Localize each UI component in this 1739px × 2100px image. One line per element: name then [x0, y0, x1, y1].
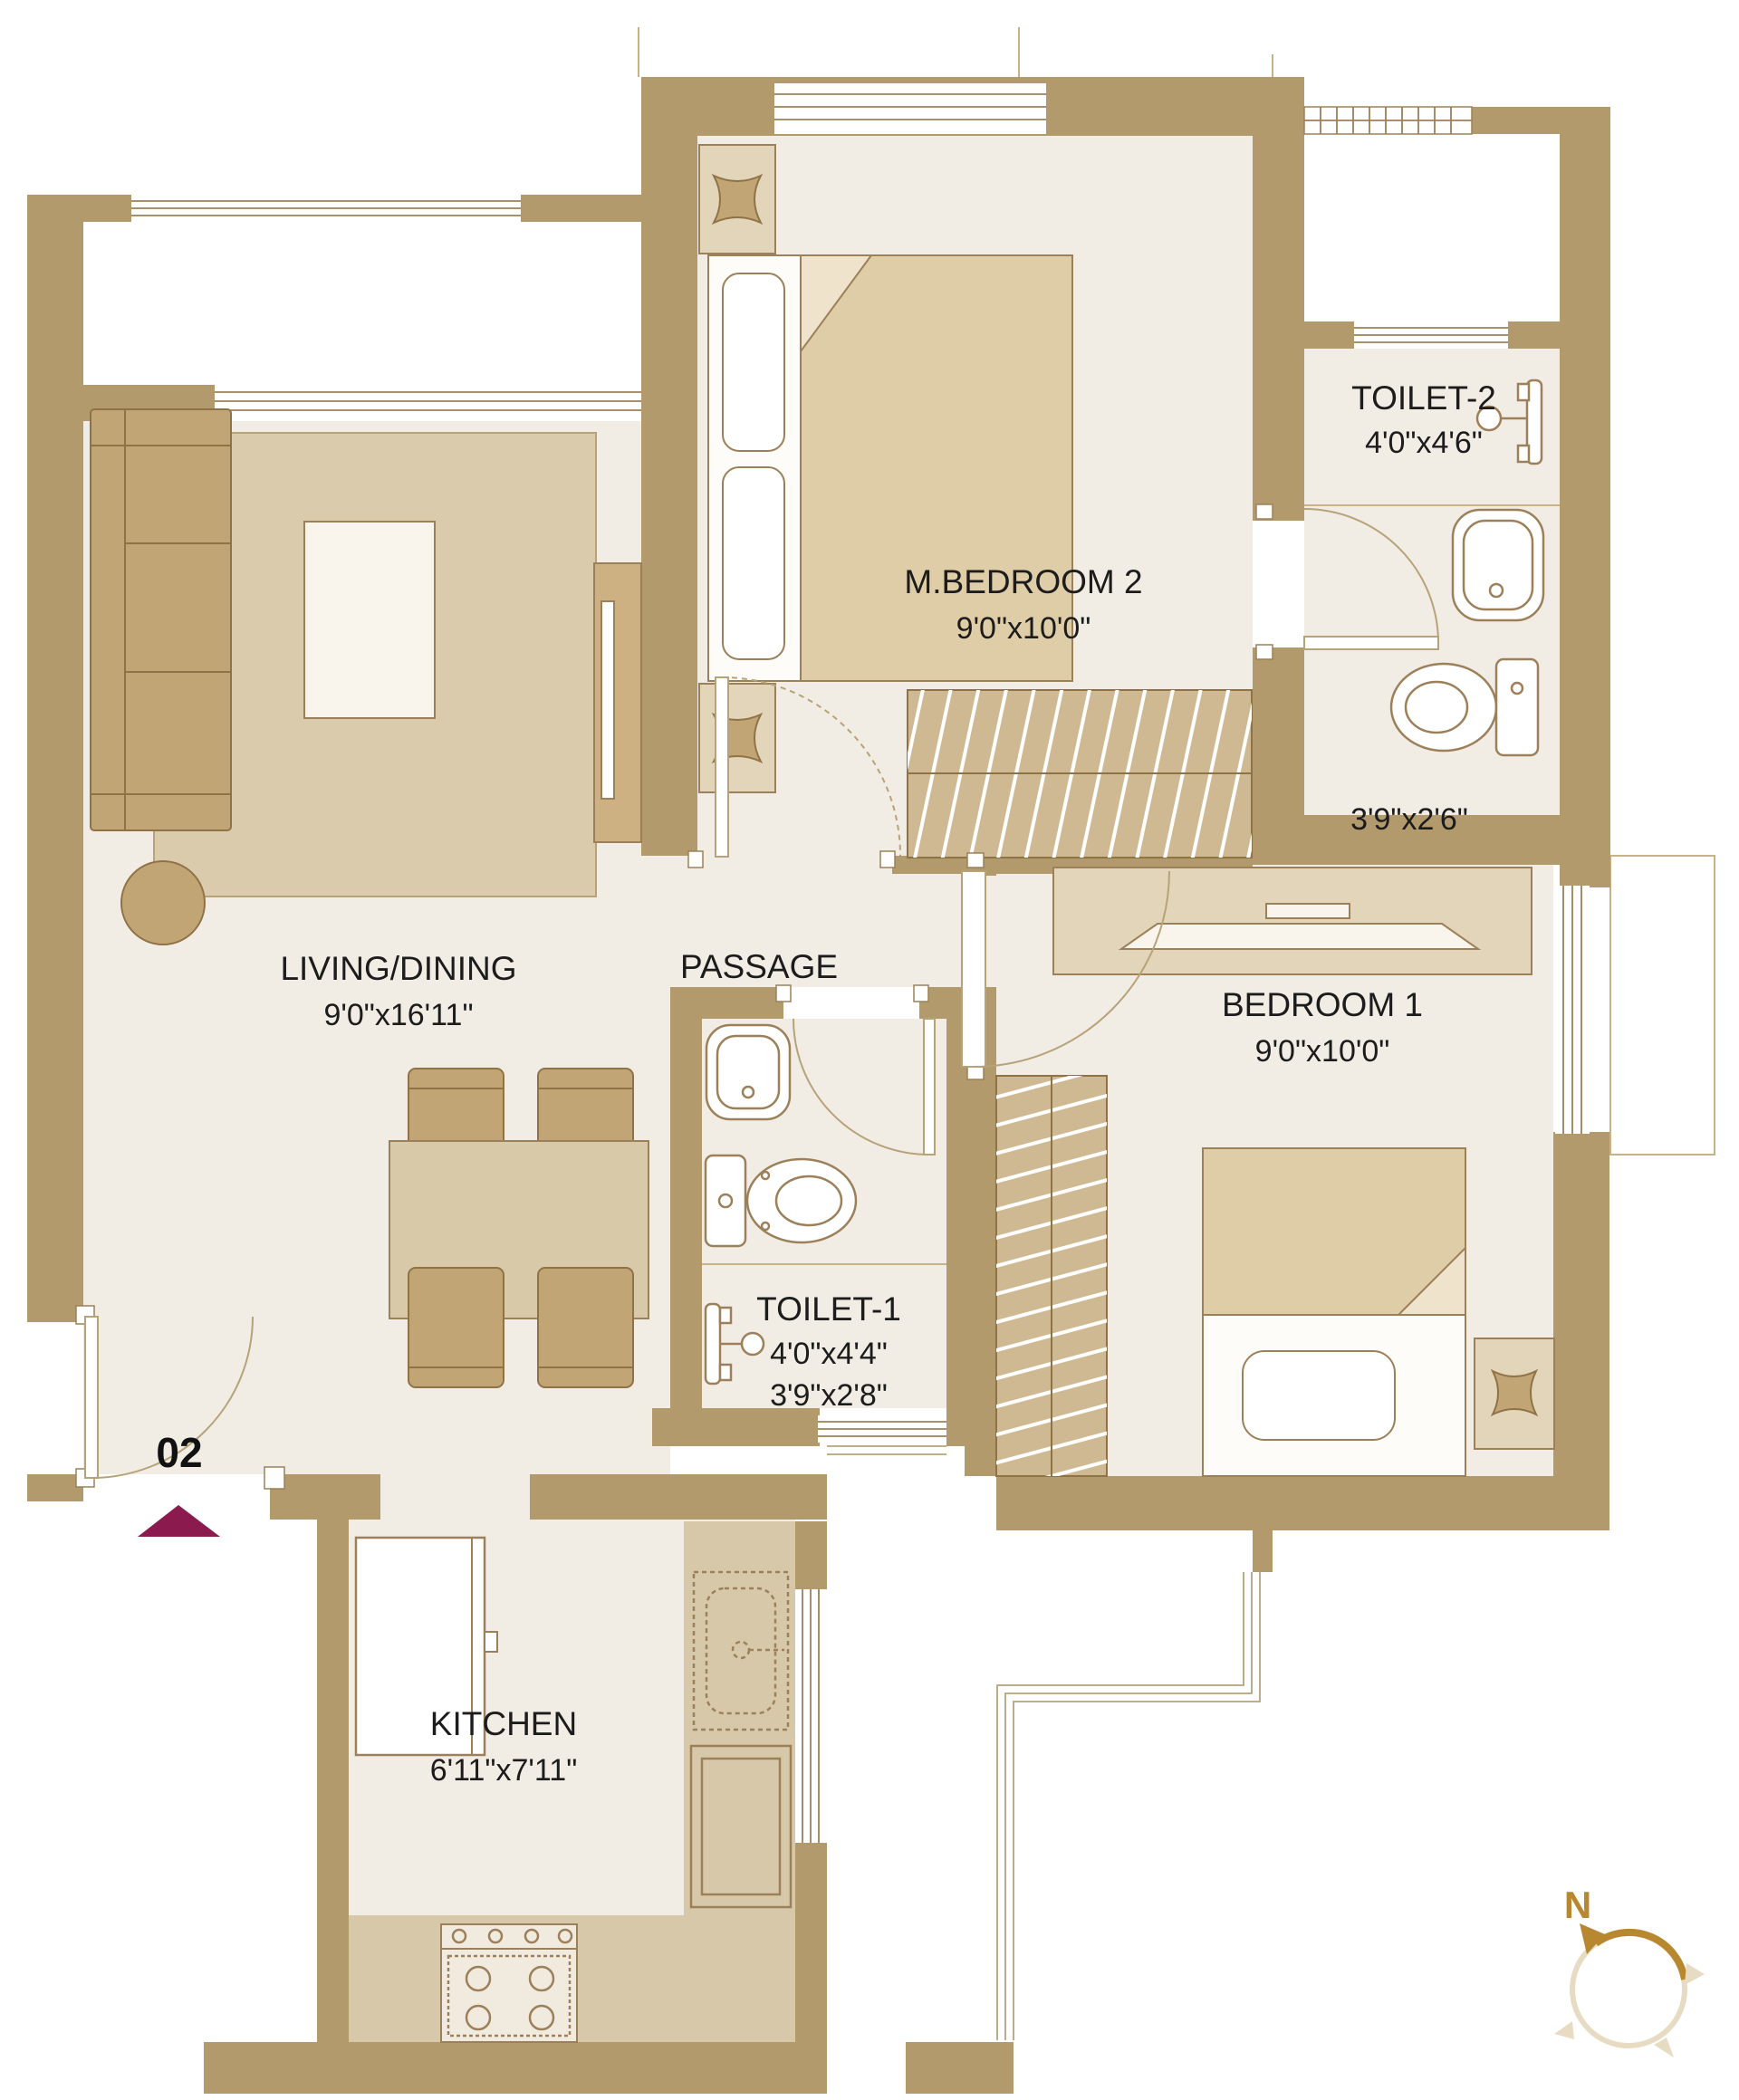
pillow — [1243, 1351, 1395, 1440]
deco-pillow — [1493, 1371, 1536, 1414]
wall-bedroom1-right — [1553, 1132, 1609, 1476]
mbedroom2-dims: 9'0"x10'0" — [956, 611, 1091, 646]
toilet1-dims: 4'0"x4'4" — [770, 1337, 888, 1371]
wall-duct-left — [1253, 77, 1304, 349]
wall-stub-below-bedroom1 — [1253, 1530, 1273, 1572]
side-chajja-outline — [1610, 856, 1715, 1155]
toilet2-sub-dims: 3'9"x2'6" — [1350, 802, 1468, 837]
living-dims: 9'0"x16'11" — [323, 998, 473, 1032]
wall-duct-bottom-right — [1508, 321, 1560, 349]
duct-louver-band — [1304, 107, 1472, 134]
bed — [1203, 1148, 1465, 1476]
toilet2-dims: 4'0"x4'6" — [1365, 426, 1483, 460]
bedroom1-right-window — [1555, 886, 1590, 1134]
mbedroom2-label: M.BEDROOM 2 — [904, 563, 1142, 600]
duct-floor — [1304, 134, 1560, 321]
wardrobe — [908, 690, 1252, 858]
balcony-top-window — [131, 195, 521, 222]
mbedroom2-top-window — [774, 83, 1046, 134]
passage-label: PASSAGE — [680, 948, 838, 985]
wall-kitchen-north-right — [530, 1474, 827, 1520]
entry-arrow-icon — [138, 1505, 220, 1537]
ledge-step-lines — [827, 1446, 1260, 2040]
coffee-table — [304, 522, 435, 718]
kitchen-label: KITCHEN — [430, 1705, 577, 1742]
wall-balcony-top-left — [27, 195, 131, 222]
compass-icon: N — [1554, 1884, 1705, 2057]
wall-toilet1-bottom — [652, 1408, 820, 1446]
stove-icon — [441, 1924, 577, 2042]
wall-toilet1-bottom-right — [946, 1408, 996, 1446]
wall-duct-bottom-left — [1304, 321, 1354, 349]
pillow — [723, 273, 784, 451]
kitchen-right-window — [795, 1589, 827, 1843]
living-label: LIVING/DINING — [280, 950, 516, 987]
wall-kitchen-right-lower — [795, 1843, 827, 2042]
bedroom1-dims: 9'0"x10'0" — [1255, 1034, 1390, 1069]
dining-chair — [408, 1268, 504, 1387]
bedroom1-label: BEDROOM 1 — [1222, 986, 1423, 1023]
balcony-floor — [83, 222, 641, 385]
sofa — [91, 409, 231, 830]
compass-north-label: N — [1564, 1884, 1591, 1926]
washbasin-icon — [1453, 510, 1543, 620]
kitchen-entry-floor — [380, 1474, 530, 1505]
wall-left-stub — [27, 1474, 83, 1501]
toilet1-label: TOILET-1 — [756, 1290, 901, 1328]
wall-right-outer — [1560, 107, 1610, 887]
dresser — [1053, 868, 1532, 974]
tv-console — [594, 563, 641, 842]
wall-bottom-right-piece — [906, 2042, 1014, 2094]
toilet2-label: TOILET-2 — [1351, 379, 1496, 417]
wall-kitchen-right-upper — [795, 1521, 827, 1589]
toilet2-duct-window — [1354, 321, 1508, 349]
wall-toilet1-top-left — [670, 987, 783, 1019]
deco-pillow — [714, 176, 761, 223]
wardrobe — [996, 1076, 1107, 1476]
wall-mbedroom2-left — [641, 77, 697, 856]
wall-bedroom1-bottom — [996, 1476, 1609, 1530]
unit-number: 02 — [156, 1429, 202, 1476]
washbasin-icon — [706, 1025, 790, 1119]
pillow — [723, 467, 784, 659]
wall-left-outer — [27, 195, 83, 1322]
floor-plan: LIVING/DINING 9'0"x16'11" PASSAGE M.BEDR… — [0, 0, 1739, 2100]
wall-kitchen-left — [317, 1501, 349, 2094]
wc-icon — [706, 1155, 856, 1246]
kitchen-dims: 6'11"x7'11" — [430, 1753, 578, 1788]
wall-toilet2-left-upper — [1253, 349, 1304, 521]
side-round-table — [121, 861, 205, 945]
wc-icon — [1391, 659, 1538, 755]
wall-duct-top-right — [1472, 107, 1560, 134]
toilet1-bottom-window — [818, 1415, 946, 1443]
wall-balcony-top-right — [521, 195, 643, 222]
wall-toilet1-left — [670, 1019, 702, 1408]
wall-kitchen-bottom — [204, 2042, 827, 2094]
balcony-living-window — [215, 385, 641, 421]
dining-chair — [538, 1268, 633, 1387]
toilet1-sub-dims: 3'9"x2'8" — [770, 1378, 888, 1413]
